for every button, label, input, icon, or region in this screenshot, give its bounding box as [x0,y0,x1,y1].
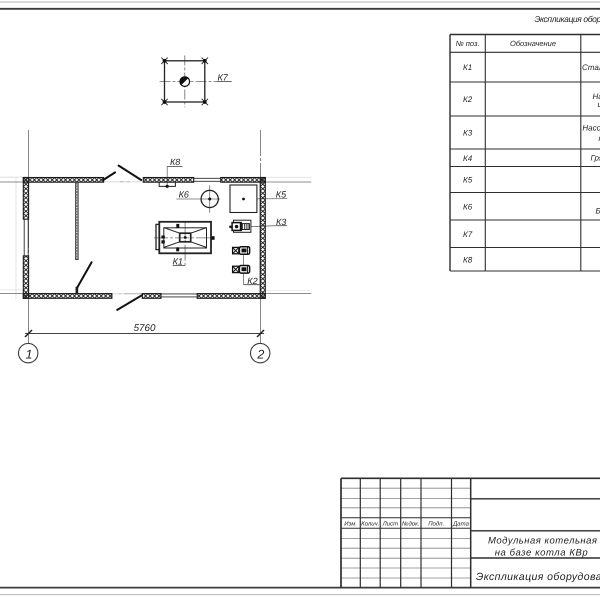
svg-text:Насос подпиточный: Насос подпиточный [582,124,600,133]
svg-text:Экспликация оборудования: Экспликация оборудования [535,14,600,24]
svg-text:№док.: №док. [402,521,420,528]
svg-text:1: 1 [26,347,33,361]
svg-text:Бак расширительный: Бак расширительный [596,207,600,216]
svg-text:Обозначение: Обозначение [510,39,556,48]
svg-text:на базе котла КВр: на базе котла КВр [495,547,588,558]
svg-text:Колич.: Колич. [361,521,379,528]
svg-text:К2: К2 [247,276,257,286]
svg-text:Подп.: Подп. [428,521,444,528]
svg-text:5760: 5760 [134,323,156,334]
svg-text:Дата: Дата [452,521,469,528]
svg-text:2: 2 [256,347,264,361]
svg-text:К3: К3 [463,129,473,138]
svg-text:К4: К4 [463,154,473,163]
svg-text:К1: К1 [463,63,472,72]
svg-text:К1: К1 [173,256,183,266]
svg-text:К6: К6 [463,202,473,211]
svg-text:Стальной котел КВр: Стальной котел КВр [582,63,600,72]
svg-text:К7: К7 [463,230,473,239]
svg-text:К6: К6 [179,189,189,199]
svg-text:Лист: Лист [382,521,398,528]
svg-text:К5: К5 [463,176,473,185]
svg-text:№ поз.: № поз. [456,39,480,48]
svg-text:Грязевик: Грязевик [591,154,600,163]
svg-text:К8: К8 [170,157,180,167]
svg-text:К2: К2 [463,95,473,104]
svg-text:К5: К5 [276,189,287,199]
svg-text:Модульная котельная: Модульная котельная [488,535,597,546]
svg-text:К7: К7 [218,73,229,83]
svg-text:К8: К8 [463,255,473,264]
svg-text:Экспликация оборудования: Экспликация оборудования [476,571,600,583]
svg-text:Изм.: Изм. [344,521,357,528]
